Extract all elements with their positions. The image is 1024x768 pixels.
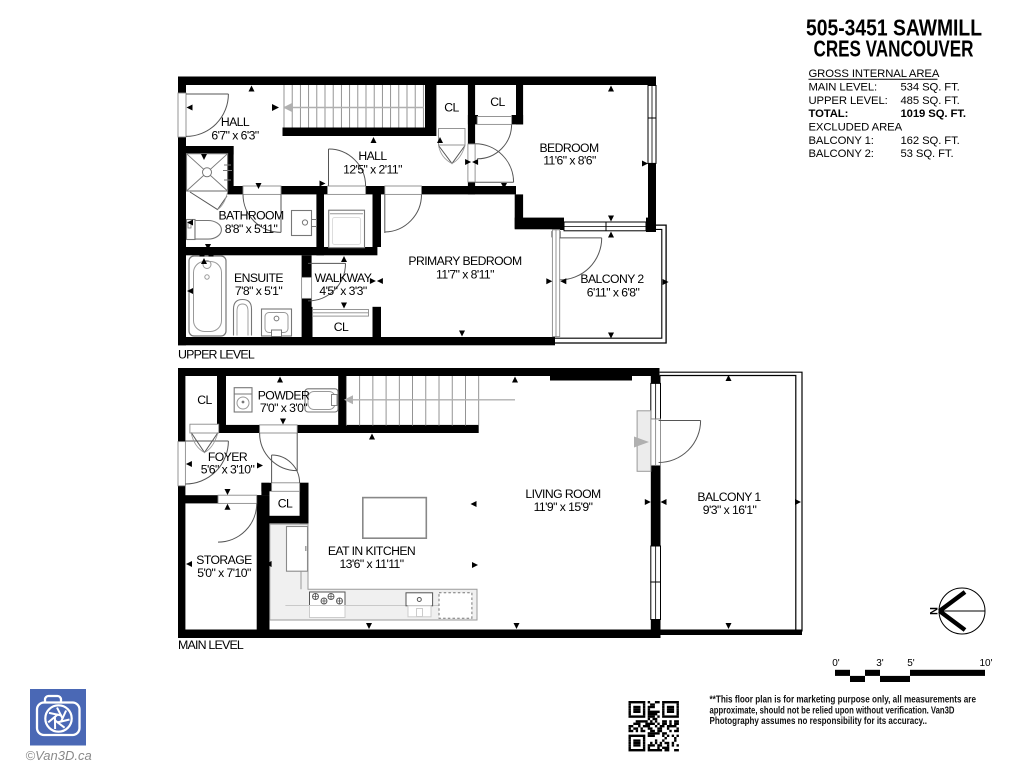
svg-text:8'8" x 5'11": 8'8" x 5'11"	[225, 222, 278, 236]
svg-text:LIVING ROOM: LIVING ROOM	[525, 487, 601, 501]
svg-text:6'7" x 6'3": 6'7" x 6'3"	[211, 129, 258, 143]
svg-text:BALCONY 1:: BALCONY 1:	[809, 135, 874, 147]
svg-text:7'0" x 3'0": 7'0" x 3'0"	[260, 401, 307, 415]
svg-text:162 SQ. FT.: 162 SQ. FT.	[901, 135, 960, 147]
svg-text:MAIN LEVEL:: MAIN LEVEL:	[809, 82, 878, 94]
svg-text:12'5" x 2'11": 12'5" x 2'11"	[343, 163, 402, 177]
svg-text:**This floor plan is for marke: **This floor plan is for marketing purpo…	[710, 695, 977, 706]
svg-text:4'5" x 3'3": 4'5" x 3'3"	[319, 284, 366, 298]
svg-text:CRES VANCOUVER: CRES VANCOUVER	[814, 36, 974, 62]
svg-text:N: N	[928, 607, 940, 615]
svg-text:5'6" x 3'10": 5'6" x 3'10"	[201, 463, 255, 477]
svg-text:5': 5'	[907, 658, 915, 669]
svg-text:Photography assumes no respons: Photography assumes no responsibility fo…	[710, 716, 928, 727]
svg-text:TOTAL:: TOTAL:	[809, 108, 849, 120]
svg-text:EAT IN KITCHEN: EAT IN KITCHEN	[328, 544, 415, 558]
svg-text:11'6" x 8'6": 11'6" x 8'6"	[543, 153, 596, 167]
svg-text:BALCONY 2:: BALCONY 2:	[809, 148, 874, 160]
svg-text:13'6" x 11'11": 13'6" x 11'11"	[339, 557, 403, 571]
svg-text:7'8" x 5'1": 7'8" x 5'1"	[235, 284, 282, 298]
svg-text:UPPER LEVEL:: UPPER LEVEL:	[809, 95, 888, 107]
svg-text:11'9" x 15'9": 11'9" x 15'9"	[534, 500, 593, 514]
svg-text:HALL: HALL	[358, 149, 387, 163]
svg-text:BALCONY 1: BALCONY 1	[697, 490, 761, 504]
svg-text:53 SQ. FT.: 53 SQ. FT.	[901, 148, 954, 160]
svg-text:CL: CL	[334, 320, 349, 334]
svg-text:©Van3D.ca: ©Van3D.ca	[26, 748, 92, 763]
svg-text:BATHROOM: BATHROOM	[218, 209, 284, 223]
svg-text:CL: CL	[197, 393, 212, 407]
svg-text:CL: CL	[490, 95, 505, 109]
svg-text:485 SQ. FT.: 485 SQ. FT.	[901, 95, 960, 107]
svg-text:HALL: HALL	[221, 115, 250, 129]
svg-text:UPPER LEVEL: UPPER LEVEL	[178, 348, 255, 362]
svg-text:PRIMARY BEDROOM: PRIMARY BEDROOM	[408, 254, 522, 268]
svg-text:CL: CL	[444, 101, 459, 115]
svg-text:10': 10'	[979, 658, 992, 669]
svg-text:ENSUITE: ENSUITE	[234, 271, 283, 285]
svg-text:CL: CL	[278, 497, 293, 511]
svg-text:0': 0'	[832, 658, 840, 669]
svg-text:GROSS INTERNAL AREA: GROSS INTERNAL AREA	[809, 68, 940, 80]
svg-text:5'0" x 7'10": 5'0" x 7'10"	[197, 566, 251, 580]
svg-text:MAIN LEVEL: MAIN LEVEL	[178, 638, 244, 652]
svg-text:STORAGE: STORAGE	[196, 553, 252, 567]
svg-text:WALKWAY: WALKWAY	[315, 271, 372, 285]
svg-text:3': 3'	[876, 658, 884, 669]
svg-text:9'3" x 16'1": 9'3" x 16'1"	[703, 503, 757, 517]
svg-text:approximate, should not be rel: approximate, should not be relied upon w…	[710, 705, 955, 716]
svg-text:EXCLUDED AREA: EXCLUDED AREA	[809, 122, 903, 134]
svg-text:6'11" x 6'8": 6'11" x 6'8"	[587, 286, 640, 300]
svg-text:11'7" x 8'11": 11'7" x 8'11"	[436, 268, 494, 282]
svg-text:BALCONY 2: BALCONY 2	[580, 272, 644, 286]
svg-text:534 SQ. FT.: 534 SQ. FT.	[901, 82, 960, 94]
svg-text:1019 SQ. FT.: 1019 SQ. FT.	[901, 108, 966, 120]
